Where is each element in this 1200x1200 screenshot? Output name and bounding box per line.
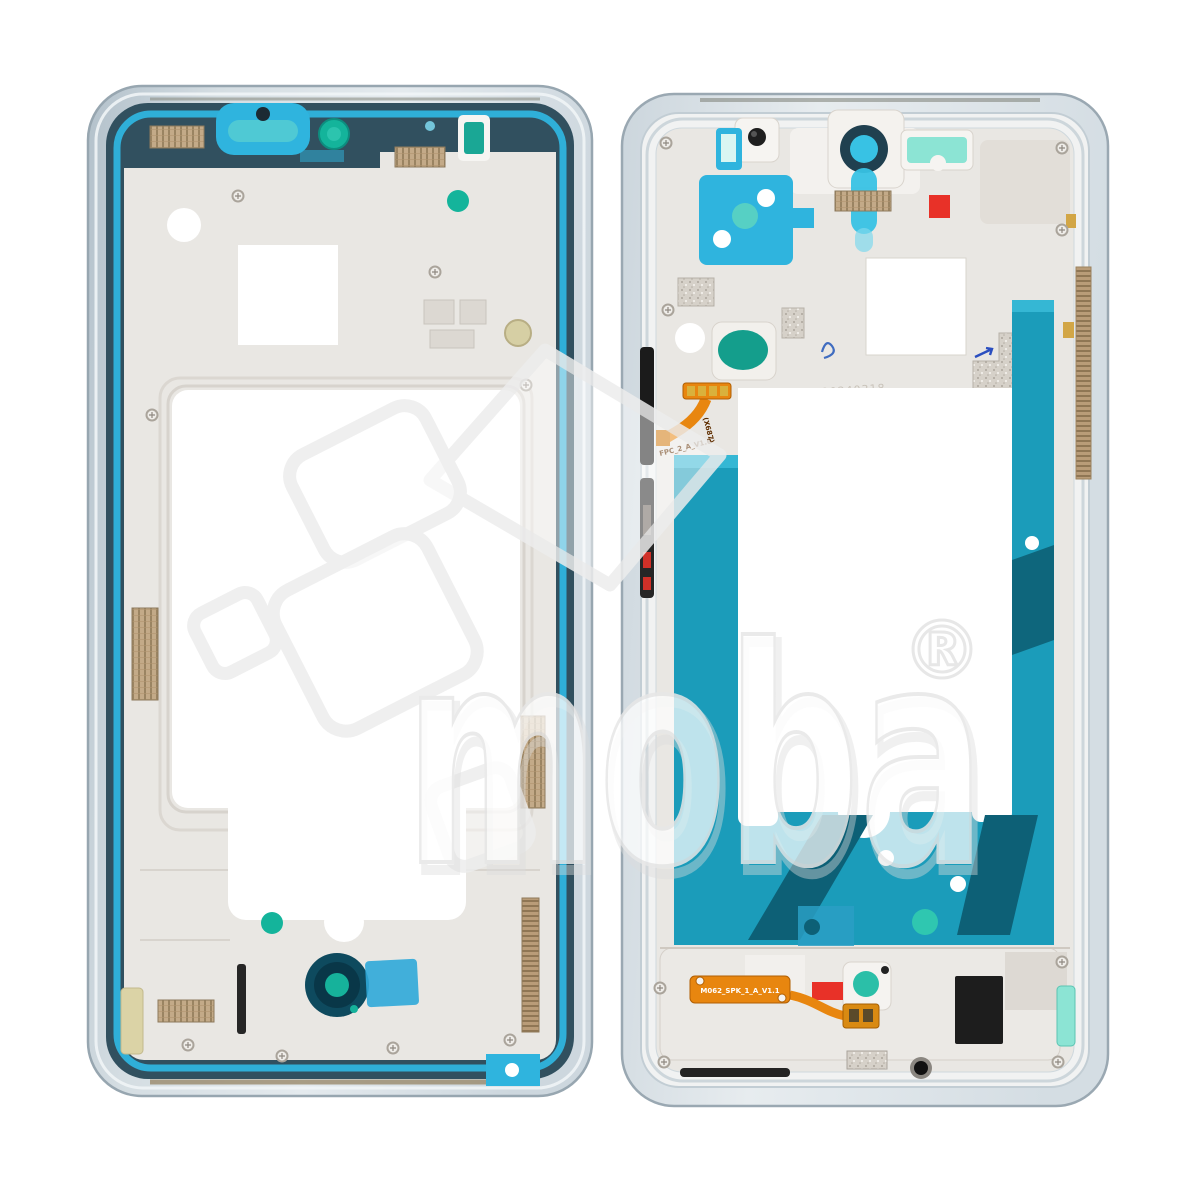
sensor-lens (748, 128, 766, 146)
cyan-patch-hole (505, 1063, 519, 1077)
connector-pad-1 (849, 1009, 859, 1022)
sensor-ring-center (325, 973, 349, 997)
speaker-teal-oval (718, 330, 768, 370)
mesh-strip-top (835, 191, 891, 211)
antenna-strip-right (1076, 267, 1091, 479)
bottom-black-strip (680, 1068, 790, 1077)
graphite-stripe-side (1012, 545, 1054, 655)
antenna-mesh-left (132, 608, 158, 700)
sparkle-mesh-left (678, 278, 714, 306)
speaker-mesh-bottom (158, 1000, 214, 1022)
teal-dot-lower (261, 912, 283, 934)
flex-hole-1 (696, 977, 704, 985)
teal-dot-upper (447, 190, 469, 212)
gold-contact-2 (1066, 214, 1076, 228)
cyan-tab-window (721, 134, 736, 162)
round-hole-left (675, 323, 705, 353)
cyan-glint (300, 150, 344, 162)
rear-camera-window (850, 135, 878, 163)
speaker-mesh-top-right (395, 147, 445, 167)
product-photo: 20240318 (X687) FPC_2_A_V1.0 (0, 0, 1200, 1200)
teal-tab-2 (1012, 300, 1054, 312)
watermark-registered-mark: ® (902, 604, 982, 697)
sparkle-mesh-mid (782, 308, 804, 338)
cyan-dot (425, 121, 435, 131)
red-sticker-bottom (812, 982, 843, 1000)
flash-window-notch (930, 155, 946, 171)
connector-pad-2 (863, 1009, 873, 1022)
sensor-ring-dot (350, 1005, 358, 1013)
patch-teal-center (732, 203, 758, 229)
sensor-hole (256, 107, 270, 121)
port-slot-black (955, 976, 1003, 1044)
adhesive-hole-3 (1025, 536, 1039, 550)
front-camera-lens (327, 127, 341, 141)
mint-strip-bottom-right (1057, 986, 1075, 1046)
patch-hole-2 (713, 230, 731, 248)
teal-circle-bottom (853, 971, 879, 997)
black-dot-small (881, 966, 889, 974)
speaker-mesh-bottom (847, 1051, 887, 1069)
flex-connector-bottom (843, 1004, 879, 1028)
flex-hole-2 (778, 994, 786, 1002)
flex-label-bottom: M062_SPK_1_A_V1.1 (700, 987, 779, 995)
mic-foam-dot (505, 320, 531, 346)
speaker-mesh-top-left (150, 126, 204, 148)
flash-window (464, 122, 484, 154)
red-sticker-top (929, 195, 950, 218)
earpiece-slot (228, 120, 298, 142)
product-photo-canvas: 20240318 (X687) FPC_2_A_V1.0 (0, 0, 1200, 1200)
khaki-patch-bottom-left (121, 988, 143, 1054)
plate-hole-round (167, 208, 201, 242)
grommet-hole (914, 1061, 928, 1075)
watermark-word: moba (405, 583, 985, 933)
camera-adhesive-tab (790, 208, 814, 228)
gold-contact-1 (1063, 322, 1074, 338)
blue-adhesive-patch (365, 959, 419, 1008)
camera-tail-tip (855, 228, 873, 252)
bottom-slot (237, 964, 246, 1034)
sensor-glint (751, 131, 757, 137)
square-cutout (866, 258, 966, 355)
patch-hole-1 (757, 189, 775, 207)
plate-cutout-square (238, 245, 338, 345)
